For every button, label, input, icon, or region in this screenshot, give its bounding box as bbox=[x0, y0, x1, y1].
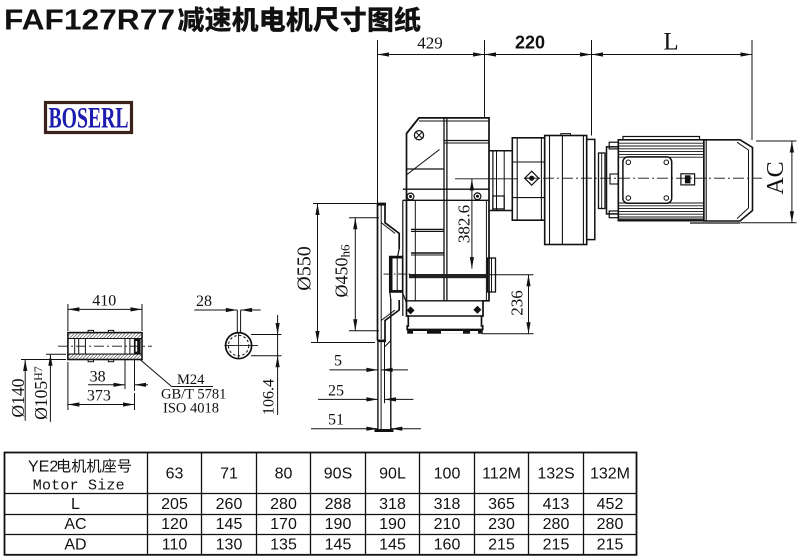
svg-text:373: 373 bbox=[87, 388, 111, 405]
svg-text:130: 130 bbox=[216, 537, 243, 554]
svg-text:38: 38 bbox=[90, 369, 106, 386]
svg-text:410: 410 bbox=[92, 293, 116, 310]
svg-text:318: 318 bbox=[379, 496, 406, 513]
svg-text:BOSERL: BOSERL bbox=[49, 102, 129, 135]
svg-text:452: 452 bbox=[597, 496, 624, 513]
svg-text:110: 110 bbox=[162, 537, 188, 554]
svg-text:135: 135 bbox=[270, 537, 297, 554]
svg-text:Ø140: Ø140 bbox=[8, 378, 28, 417]
svg-text:FAF127R77: FAF127R77 bbox=[4, 5, 175, 37]
svg-text:51: 51 bbox=[328, 412, 344, 429]
svg-text:160: 160 bbox=[434, 537, 461, 554]
svg-text:145: 145 bbox=[379, 537, 406, 554]
svg-text:260: 260 bbox=[216, 496, 243, 513]
svg-text:L: L bbox=[71, 496, 80, 513]
svg-text:236: 236 bbox=[508, 290, 527, 316]
svg-text:382.6: 382.6 bbox=[455, 205, 474, 243]
svg-text:132M: 132M bbox=[590, 466, 630, 483]
svg-text:210: 210 bbox=[434, 516, 461, 533]
svg-text:AC: AC bbox=[64, 516, 86, 533]
svg-text:ISO 4018: ISO 4018 bbox=[163, 401, 219, 417]
svg-text:YE2: YE2 bbox=[28, 459, 58, 476]
svg-text:318: 318 bbox=[434, 496, 461, 513]
svg-text:Motor Size: Motor Size bbox=[33, 478, 125, 495]
svg-text:5: 5 bbox=[334, 353, 342, 370]
svg-text:80: 80 bbox=[275, 466, 293, 483]
svg-text:28: 28 bbox=[196, 293, 212, 310]
svg-text:205: 205 bbox=[161, 496, 188, 513]
svg-text:190: 190 bbox=[325, 516, 352, 533]
svg-text:132S: 132S bbox=[537, 466, 574, 483]
svg-text:170: 170 bbox=[270, 516, 297, 533]
svg-text:145: 145 bbox=[325, 537, 352, 554]
svg-text:220: 220 bbox=[515, 33, 545, 53]
svg-text:63: 63 bbox=[166, 466, 184, 483]
svg-text:AD: AD bbox=[64, 537, 86, 554]
svg-text:112M: 112M bbox=[482, 466, 521, 483]
svg-text:215: 215 bbox=[488, 537, 515, 554]
svg-text:288: 288 bbox=[325, 496, 352, 513]
svg-text:429: 429 bbox=[417, 34, 443, 53]
svg-text:106.4: 106.4 bbox=[261, 379, 278, 415]
svg-text:215: 215 bbox=[543, 537, 570, 554]
svg-text:190: 190 bbox=[379, 516, 406, 533]
svg-text:71: 71 bbox=[220, 466, 238, 483]
svg-text:215: 215 bbox=[597, 537, 624, 554]
svg-text:120: 120 bbox=[161, 516, 188, 533]
svg-text:Ø550: Ø550 bbox=[294, 246, 316, 290]
svg-text:280: 280 bbox=[270, 496, 297, 513]
svg-text:90S: 90S bbox=[324, 466, 352, 483]
svg-text:280: 280 bbox=[543, 516, 570, 533]
svg-text:25: 25 bbox=[328, 383, 344, 400]
svg-text:100: 100 bbox=[434, 466, 461, 483]
svg-text:230: 230 bbox=[488, 516, 515, 533]
svg-text:365: 365 bbox=[488, 496, 515, 513]
svg-text:AC: AC bbox=[763, 161, 789, 194]
svg-text:145: 145 bbox=[216, 516, 243, 533]
svg-text:280: 280 bbox=[597, 516, 624, 533]
svg-text:90L: 90L bbox=[379, 466, 406, 483]
svg-text:L: L bbox=[663, 29, 678, 56]
svg-text:413: 413 bbox=[543, 496, 570, 513]
